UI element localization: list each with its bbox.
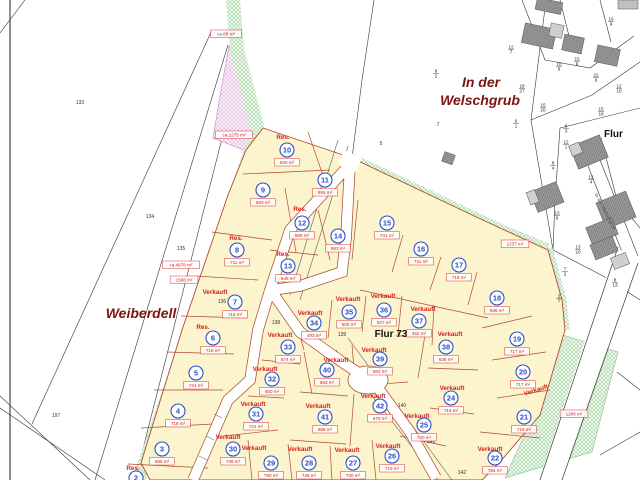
area-label-text: 626 m² <box>280 160 295 165</box>
area-label: 718 m² <box>201 347 226 355</box>
plot-number: 9 <box>261 186 265 195</box>
parcel-fraction: 1310 <box>575 245 581 255</box>
plot-number: 30 <box>229 445 237 454</box>
area-label: 505 m² <box>337 321 362 329</box>
label-welschgrub: Welschgrub <box>440 92 520 108</box>
plot-number: 31 <box>252 410 260 419</box>
area-label: 493 m² <box>302 332 327 340</box>
area-label-text: 711 m² <box>230 260 244 265</box>
area-label: 730 m² <box>341 472 366 480</box>
area-label: 683 m² <box>326 245 351 253</box>
plot-status-sold: Verkauft <box>371 293 397 300</box>
area-label: 679 m² <box>368 415 393 423</box>
area-label-text: 888 m² <box>318 427 333 432</box>
plot-status-sold: Verkauft <box>411 306 437 313</box>
plot-number: 26 <box>388 452 396 461</box>
area-label: 718 m² <box>447 274 472 282</box>
fraction-denominator: 7 <box>558 298 561 303</box>
area-label-text: 650 m² <box>265 389 280 394</box>
parcel-fraction: 1827 <box>519 84 525 94</box>
fraction-denominator: 10 <box>575 249 581 254</box>
area-label: ca.1275 m² <box>216 131 253 139</box>
area-label: 626 m² <box>275 159 300 167</box>
plot-number: 33 <box>284 343 292 352</box>
area-label: 714 m² <box>439 407 464 415</box>
area-label: 1586 m² <box>170 276 198 284</box>
area-label-text: 493 m² <box>307 333 322 338</box>
area-label: 1286 m² <box>560 410 588 418</box>
area-label: 527 m² <box>372 319 397 327</box>
area-label-text: 648 m² <box>281 276 296 281</box>
plot-number: 41 <box>321 413 329 422</box>
plot-number: 8 <box>235 246 239 255</box>
plot-number: 16 <box>417 245 425 254</box>
plot-status-reserved: Res. <box>293 206 307 213</box>
area-label: 784 m² <box>483 467 508 475</box>
boundary-point: 135 <box>177 246 186 252</box>
fraction-denominator: 2 <box>564 271 567 276</box>
fraction-denominator: 9 <box>556 215 559 220</box>
area-label-text: 505 m² <box>342 322 357 327</box>
fraction-denominator: 2 <box>435 73 438 78</box>
area-label-text: 718 m² <box>206 348 221 353</box>
area-label: 711 m² <box>225 259 250 267</box>
plot-number: 3 <box>160 445 164 454</box>
plot-number: 7 <box>233 298 237 307</box>
area-label: 492 m² <box>407 330 432 338</box>
plot-number: 28 <box>305 459 313 468</box>
plot-number: 5 <box>194 369 198 378</box>
area-label-text: 784 m² <box>488 468 503 473</box>
area-label-text: 679 m² <box>373 416 388 421</box>
area-label: 717 m² <box>511 381 536 389</box>
plot-status-sold: Verkauft <box>336 296 362 303</box>
boundary-point: 138 <box>272 320 281 326</box>
plot-number: 38 <box>442 343 450 352</box>
area-label-text: 717 m² <box>510 349 525 354</box>
cadastral-map: Weiberdell In der Welschgrub Flur 73 Flu… <box>0 0 640 480</box>
area-label: 888 m² <box>313 426 338 434</box>
fraction-denominator: 9 <box>595 77 598 82</box>
area-label: 583 m² <box>251 199 276 207</box>
plot-status-sold: Verkauft <box>268 332 294 339</box>
plot-status-sold: Verkauft <box>298 310 324 317</box>
area-label: 655 m² <box>313 189 338 197</box>
area-label-text: 583 m² <box>256 200 271 205</box>
area-label: 836 m² <box>485 307 510 315</box>
boundary-point: 139 <box>338 332 347 338</box>
fraction-denominator: 1 <box>565 144 568 149</box>
plot-status-reserved: Res. <box>276 134 290 141</box>
area-label-text: 636 m² <box>439 357 454 362</box>
plot-number: 14 <box>334 232 343 241</box>
area-label: 718 m² <box>166 420 191 428</box>
area-label: 563 m² <box>315 379 340 387</box>
area-label-text: ca.1275 m² <box>223 133 246 138</box>
area-label: 650 m² <box>260 388 285 396</box>
fraction-denominator: 27 <box>519 88 525 93</box>
boundary-point: 197 <box>52 413 61 419</box>
area-label-text: ca.4878 m² <box>170 263 193 268</box>
plot-status-sold: Verkauft <box>376 443 402 450</box>
plot-number: 12 <box>298 219 306 228</box>
area-label-text: 527 m² <box>377 320 392 325</box>
plot-number: 42 <box>376 402 384 411</box>
area-label-text: 718 m² <box>171 421 186 426</box>
area-label-text: 736 m² <box>226 459 241 464</box>
area-label: 720 m² <box>412 434 437 442</box>
plot-number: 11 <box>321 176 329 185</box>
plot-status-sold: Verkauft <box>438 331 464 338</box>
fraction-denominator: 9 <box>610 21 613 26</box>
plot-status-reserved: Res. <box>276 251 290 258</box>
cadastral-map-page: Weiberdell In der Welschgrub Flur 73 Flu… <box>0 0 640 480</box>
building <box>618 0 638 9</box>
area-label-text: 718 m² <box>452 275 467 280</box>
plot-number: 2 <box>134 474 138 480</box>
fraction-denominator: 10 <box>616 88 622 93</box>
area-label: 721 m² <box>244 423 269 431</box>
fraction-denominator: 20 <box>540 107 546 112</box>
area-label-text: 563 m² <box>320 380 335 385</box>
plot-status-sold: Verkauft <box>203 289 229 296</box>
area-label: ca.4878 m² <box>163 261 200 269</box>
plot-number: 25 <box>420 421 428 430</box>
plot-number: 22 <box>491 454 499 463</box>
area-label: 648 m² <box>276 275 301 283</box>
plot-number: 32 <box>268 375 276 384</box>
area-label-text: 492 m² <box>412 331 427 336</box>
label-in-der: In der <box>462 74 502 90</box>
label-flur-right: Flur <box>604 129 623 140</box>
area-label-text: 656 m² <box>295 233 310 238</box>
boundary-point: 134 <box>146 214 155 220</box>
area-label-text: 582 m² <box>373 369 388 374</box>
area-label-text: 720 m² <box>417 435 432 440</box>
area-label: 574 m² <box>276 356 301 364</box>
area-label: 790 m² <box>259 472 284 480</box>
plot-number: 17 <box>455 261 463 270</box>
plot-status-reserved: Res. <box>196 324 210 331</box>
area-label-text: 1586 m² <box>176 278 193 283</box>
boundary-point: 140 <box>398 403 407 409</box>
plot-number: 39 <box>376 355 384 364</box>
area-label-text: 790 m² <box>264 473 279 478</box>
area-label: 736 m² <box>221 458 246 466</box>
label-weiberdell: Weiberdell <box>106 305 178 321</box>
area-label-text: 686 m² <box>155 459 170 464</box>
area-label-text: 741 m² <box>189 383 204 388</box>
boundary-point: 136 <box>218 299 227 305</box>
plot-status-reserved: Res. <box>229 235 243 242</box>
area-label-text: 574 m² <box>281 357 296 362</box>
boundary-point: 142 <box>458 470 467 476</box>
area-label-text: 741 m² <box>380 233 395 238</box>
area-label-text: 683 m² <box>331 246 346 251</box>
area-label: 636 m² <box>434 356 459 364</box>
plot-number: 10 <box>283 146 291 155</box>
plot-number: 37 <box>415 317 423 326</box>
plot-number: 34 <box>310 319 319 328</box>
area-label-text: 711 m² <box>414 259 428 264</box>
plot-number: 21 <box>520 413 528 422</box>
plot-status-sold: Verkauft <box>335 447 361 454</box>
area-label: 717 m² <box>505 348 530 356</box>
area-label-text: 716 m² <box>228 312 243 317</box>
fraction-denominator: 13 <box>612 282 618 287</box>
plot-status-sold: Verkauft <box>306 403 332 410</box>
area-label-text: 836 m² <box>490 308 505 313</box>
area-label: 736 m² <box>297 472 322 480</box>
plot-status-sold: Verkauft <box>216 434 242 441</box>
area-label-text: 736 m² <box>302 473 317 478</box>
area-label: 719 m² <box>380 465 405 473</box>
area-label: 716 m² <box>223 311 248 319</box>
area-label: 741 m² <box>375 232 400 240</box>
fraction-denominator: 1 <box>515 123 518 128</box>
boundary-point: 5 <box>380 141 383 147</box>
plot-number: 36 <box>380 306 388 315</box>
area-label: 718 m² <box>512 426 537 434</box>
building-annex <box>549 23 564 38</box>
area-label-text: 730 m² <box>346 473 361 478</box>
area-label-text: 1286 m² <box>566 412 583 417</box>
label-flur-73: Flur 73 <box>375 329 408 340</box>
area-label: 741 m² <box>184 382 209 390</box>
plot-number: 20 <box>519 368 527 377</box>
area-label: 656 m² <box>290 232 315 240</box>
fraction-denominator: 18 <box>598 111 604 116</box>
area-label: 1237 m² <box>501 240 529 248</box>
area-label: 711 m² <box>409 258 434 266</box>
plot-number: 6 <box>211 334 215 343</box>
area-label-text: 719 m² <box>385 466 400 471</box>
plot-status-sold: Verkauft <box>242 445 268 452</box>
plot-number: 19 <box>513 335 521 344</box>
boundary-point: 7 <box>437 122 440 128</box>
plot-number: 13 <box>284 262 292 271</box>
fraction-denominator: 7 <box>510 49 513 54</box>
area-label: ca.88 m² <box>211 30 242 38</box>
area-label: 582 m² <box>368 368 393 376</box>
plot-number: 15 <box>383 219 391 228</box>
fraction-denominator: 8 <box>576 61 579 66</box>
plot-number: 40 <box>323 366 331 375</box>
fraction-denominator: 8 <box>558 66 561 71</box>
area-label-text: 718 m² <box>517 427 532 432</box>
area-label: 686 m² <box>150 458 175 466</box>
fraction-denominator: 4 <box>552 165 555 170</box>
area-label-text: ca.88 m² <box>217 32 235 37</box>
plot-number: 35 <box>345 308 353 317</box>
area-label-text: 655 m² <box>318 190 333 195</box>
plot-number: 29 <box>267 459 275 468</box>
parcel-fraction: 1210 <box>616 84 622 94</box>
plot-number: 24 <box>447 394 456 403</box>
plot-number: 18 <box>493 294 501 303</box>
area-label-text: 1237 m² <box>507 242 524 247</box>
plot-number: 27 <box>349 459 357 468</box>
parcel-fraction: 1520 <box>540 103 546 113</box>
area-label-text: 714 m² <box>444 408 459 413</box>
area-label-text: 717 m² <box>516 382 531 387</box>
fraction-denominator: 3 <box>565 128 568 133</box>
fraction-denominator: 4 <box>590 179 593 184</box>
boundary-point: 133 <box>76 100 85 106</box>
plot-status-sold: Verkauft <box>288 446 314 453</box>
area-label-text: 721 m² <box>249 424 264 429</box>
parcel-fraction: 1518 <box>598 107 604 117</box>
